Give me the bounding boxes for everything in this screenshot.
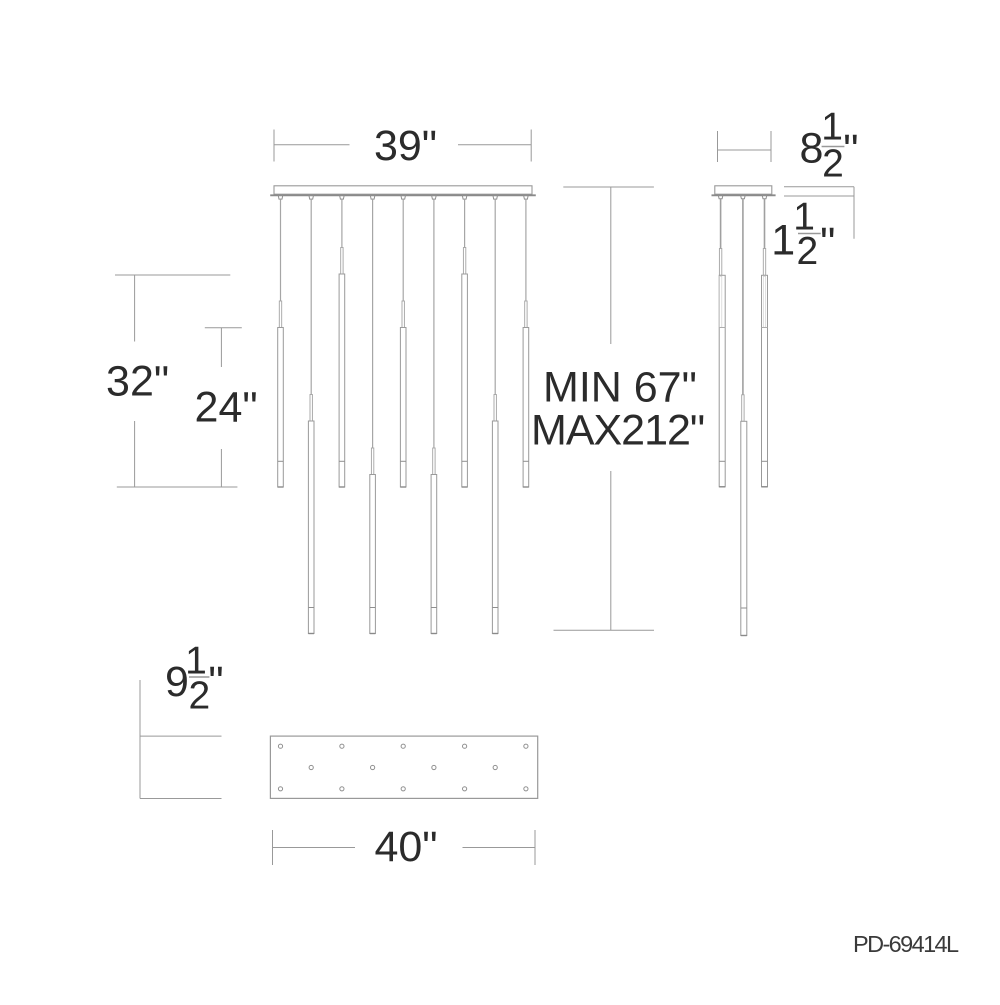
svg-text:8: 8 — [800, 125, 824, 173]
svg-text:2: 2 — [189, 675, 211, 718]
svg-text:": " — [208, 658, 223, 706]
svg-text:PD-69414L: PD-69414L — [853, 931, 959, 957]
svg-text:": " — [843, 126, 858, 174]
svg-text:32": 32" — [106, 357, 169, 405]
svg-text:MAX212": MAX212" — [531, 407, 704, 455]
svg-text:39": 39" — [374, 122, 437, 170]
svg-text:2: 2 — [797, 230, 819, 273]
svg-text:2: 2 — [822, 143, 844, 186]
svg-text:40": 40" — [374, 823, 437, 871]
svg-text:": " — [820, 219, 835, 267]
svg-text:MIN 67": MIN 67" — [543, 364, 697, 412]
svg-text:1: 1 — [771, 217, 795, 265]
svg-text:24": 24" — [195, 384, 258, 432]
